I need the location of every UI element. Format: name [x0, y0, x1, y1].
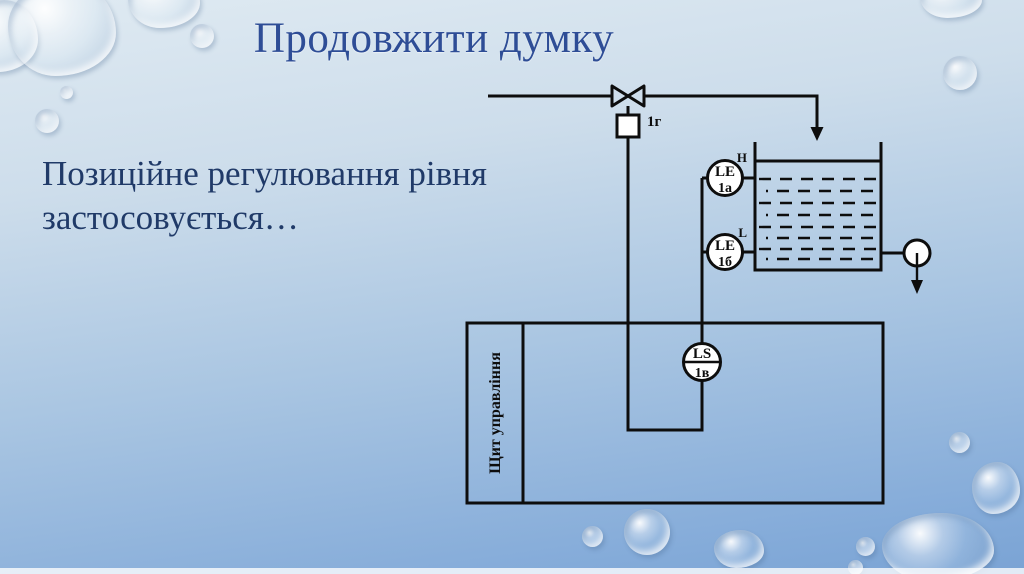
- level-sensor-le1b-icon: LE 1б: [708, 235, 756, 271]
- high-level-mark: H: [737, 150, 747, 165]
- control-panel: Щит управління: [467, 323, 883, 503]
- svg-text:1в: 1в: [695, 366, 710, 381]
- svg-text:LE: LE: [715, 238, 735, 254]
- low-level-mark: L: [738, 225, 747, 240]
- inlet-arrow-icon: [811, 127, 824, 141]
- tank: [755, 142, 881, 270]
- valve-actuator-icon: [617, 115, 639, 137]
- presentation-slide: Продовжити думку Позиційне регулювання р…: [0, 0, 1024, 574]
- level-control-diagram: 1г Щит управління H L: [0, 0, 1024, 574]
- signal-lines: [628, 137, 712, 430]
- svg-text:1б: 1б: [718, 255, 732, 270]
- svg-text:LE: LE: [715, 164, 735, 180]
- drain-arrow-icon: [911, 280, 923, 294]
- control-panel-label: Щит управління: [487, 352, 504, 474]
- level-sensor-le1a-icon: LE 1а: [708, 161, 756, 197]
- control-valve-icon: 1г: [612, 86, 662, 137]
- svg-text:LS: LS: [693, 346, 711, 362]
- level-switch-ls1v-icon: LS 1в: [684, 344, 721, 382]
- drain-outlet-icon: [881, 240, 930, 294]
- svg-text:1а: 1а: [718, 181, 732, 196]
- valve-tag-label: 1г: [647, 114, 662, 130]
